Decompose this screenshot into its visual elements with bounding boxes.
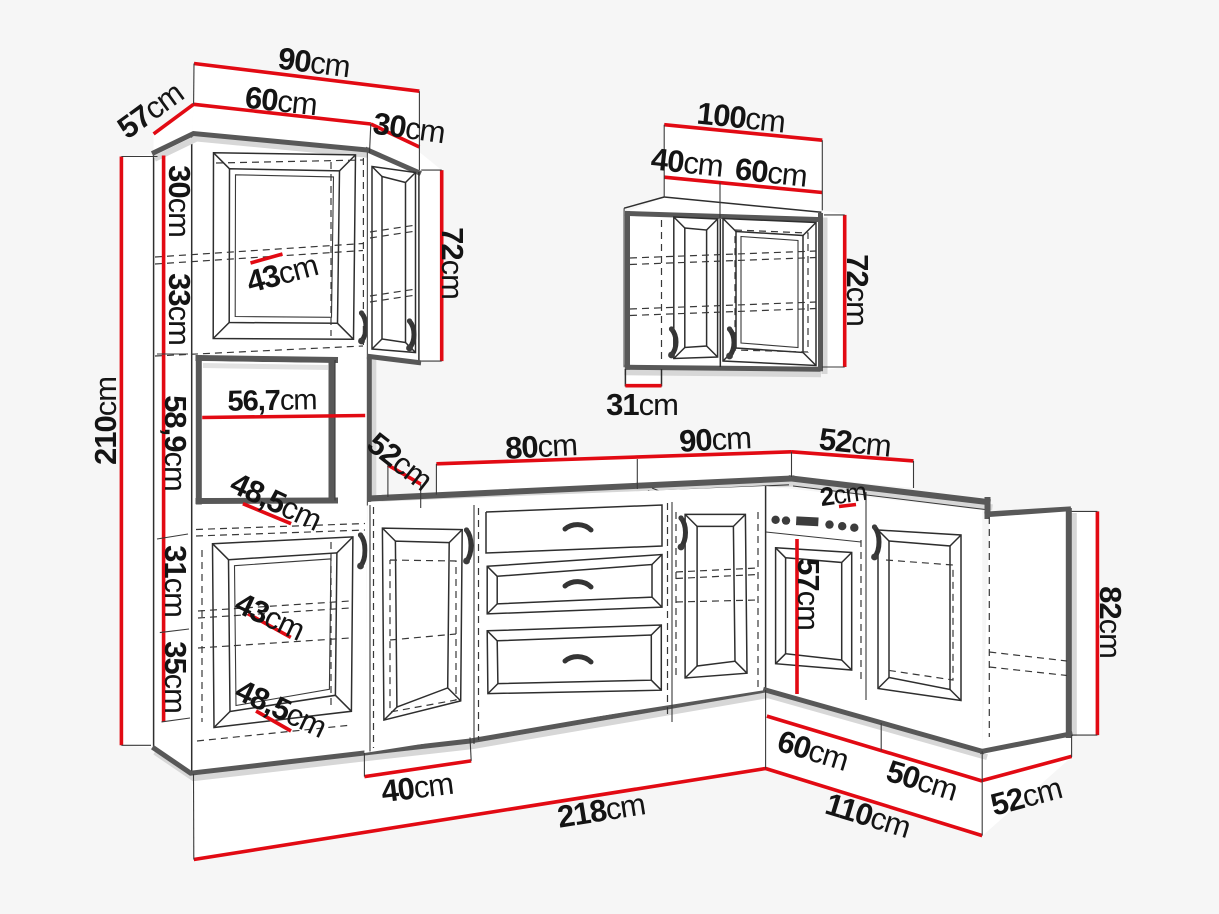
svg-text:52cm: 52cm xyxy=(817,421,892,463)
svg-text:210cm: 210cm xyxy=(88,377,123,465)
svg-text:72cm: 72cm xyxy=(840,254,875,326)
svg-text:30cm: 30cm xyxy=(162,165,197,237)
svg-text:35cm: 35cm xyxy=(158,641,193,713)
svg-text:58,9cm: 58,9cm xyxy=(158,395,193,491)
svg-text:60cm: 60cm xyxy=(243,80,318,122)
svg-text:31cm: 31cm xyxy=(158,545,193,617)
svg-text:56,7cm: 56,7cm xyxy=(227,384,317,418)
svg-text:40cm: 40cm xyxy=(649,141,724,183)
svg-text:33cm: 33cm xyxy=(162,273,197,345)
svg-text:31cm: 31cm xyxy=(606,387,678,422)
svg-text:57cm: 57cm xyxy=(791,558,826,630)
svg-text:72cm: 72cm xyxy=(435,227,470,299)
svg-text:2cm: 2cm xyxy=(818,476,868,512)
svg-text:80cm: 80cm xyxy=(504,427,578,466)
svg-text:60cm: 60cm xyxy=(733,151,808,193)
svg-text:90cm: 90cm xyxy=(678,420,752,459)
svg-text:82cm: 82cm xyxy=(1093,586,1128,658)
